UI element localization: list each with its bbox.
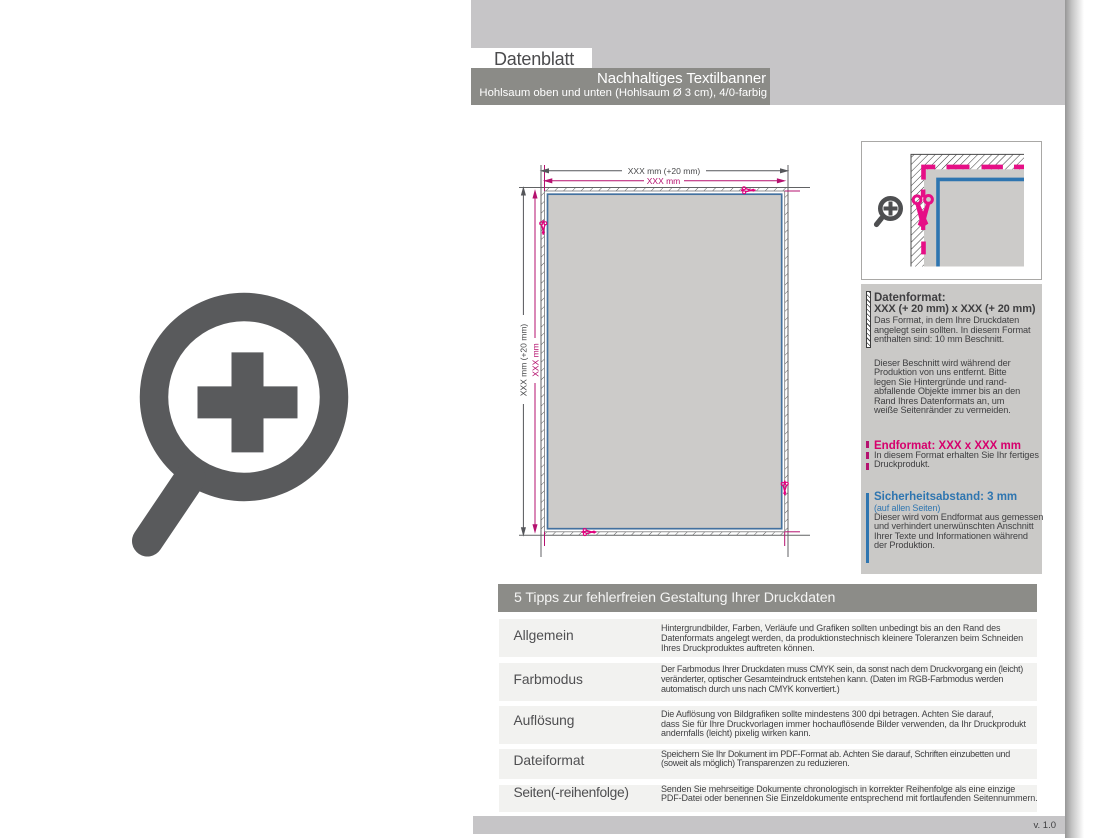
svg-text:XXX mm: XXX mm [647,176,681,186]
svg-text:XXX mm (+20 mm): XXX mm (+20 mm) [519,324,529,397]
svg-text:XXX mm (+20 mm): XXX mm (+20 mm) [628,166,701,176]
svg-text:XXX mm: XXX mm [530,343,540,377]
